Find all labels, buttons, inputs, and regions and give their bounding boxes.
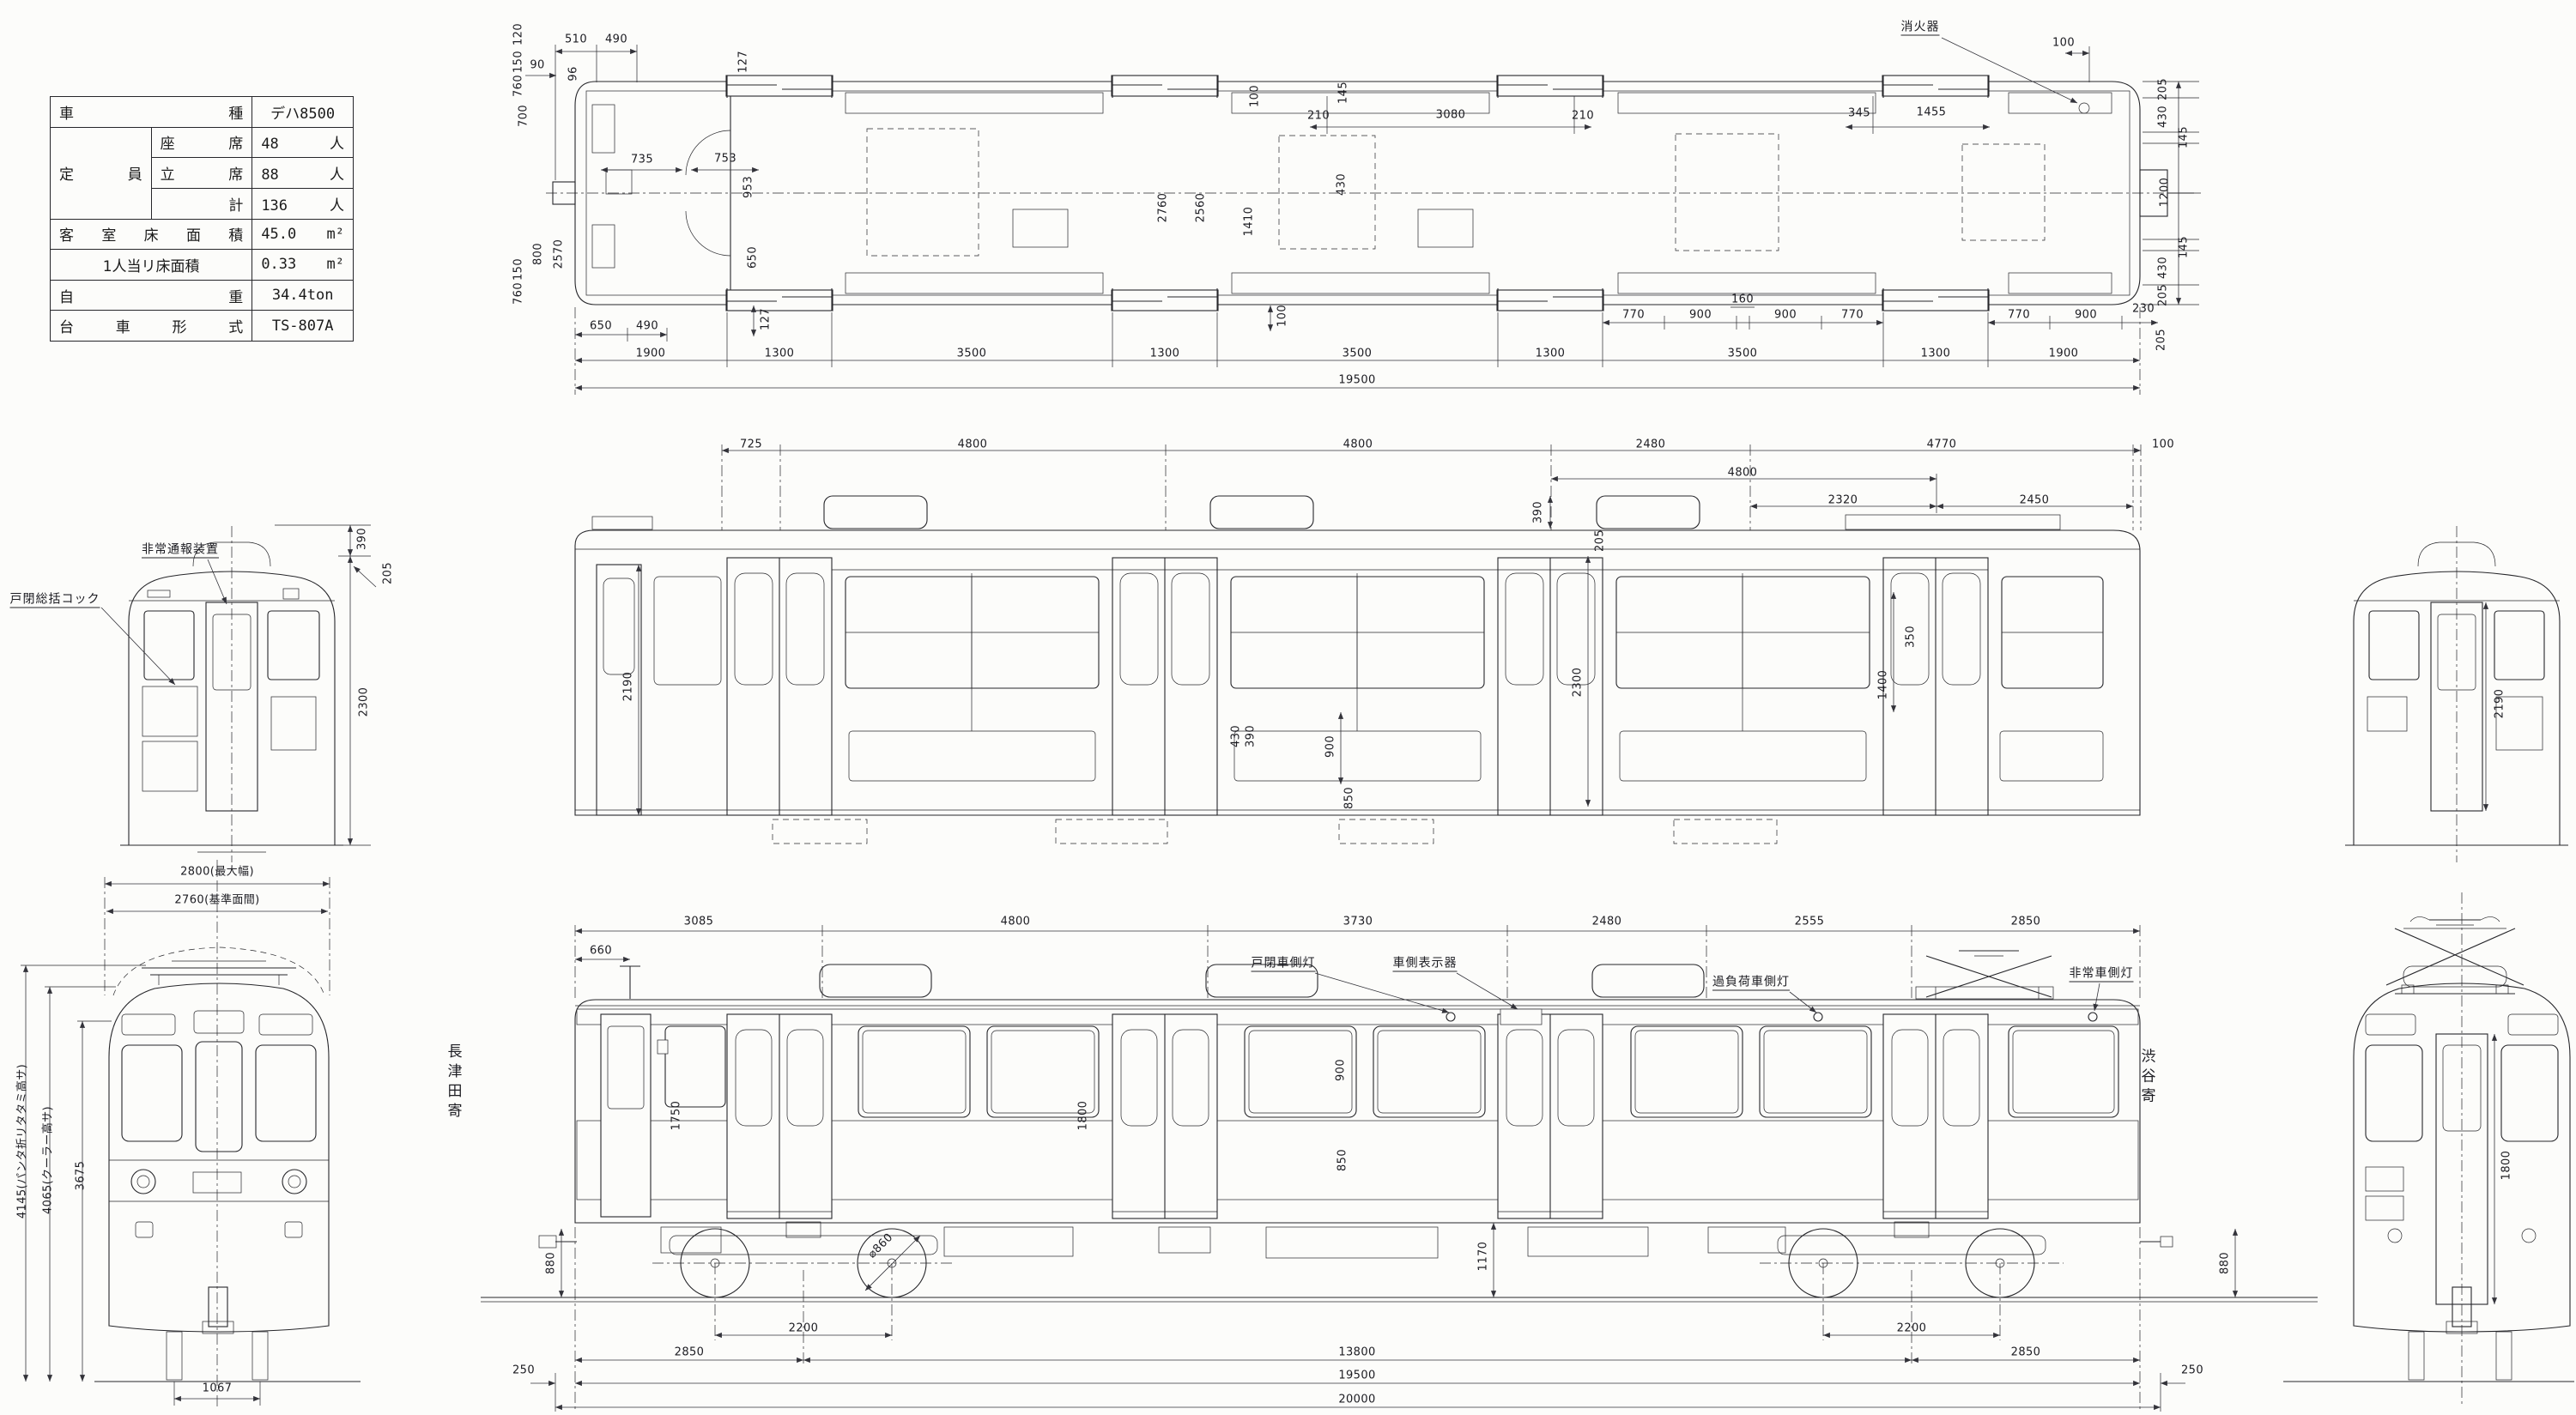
plan-dim-800: 800 <box>533 243 544 265</box>
overload-lamp-label: 過負荷車側灯 <box>1712 977 1790 991</box>
spec-row-floor-area: 客室床面積 45.0 m² <box>51 219 354 250</box>
plan-dim-145b: 145 <box>2179 236 2190 258</box>
plan-dim-490-top: 490 <box>605 34 627 45</box>
car-side-indicator-box <box>1500 1009 1542 1025</box>
plan-dim-770b: 770 <box>1841 310 1864 321</box>
plan-dim-430b: 430 <box>2158 257 2169 279</box>
spec-label-weight: 自 重 <box>51 280 252 311</box>
plan-dim-205b: 205 <box>2158 284 2169 306</box>
spec-value-weight: 34.4ton <box>252 280 354 311</box>
side1-windows-seats <box>832 570 2103 781</box>
side2-dim-1800: 1800 <box>1078 1101 1089 1131</box>
spec-value-standing: 88 人 <box>252 158 354 189</box>
plan-dim-150b: 150 <box>513 258 524 281</box>
left-end-view-linework <box>101 525 376 862</box>
plan-dim-900b: 900 <box>1774 310 1797 321</box>
spec-value-floor-area: 45.0 m² <box>252 219 354 250</box>
plan-dim-953: 953 <box>743 176 755 198</box>
plan-dim-127-bottom: 127 <box>761 308 772 330</box>
plan-dim-150a: 150 <box>513 51 524 73</box>
side1-dim-2450: 2450 <box>2020 495 2050 506</box>
side1-dim-4800c: 4800 <box>1728 468 1758 479</box>
side1-dim-205: 205 <box>1595 529 1606 552</box>
side2-dim-2850R: 2850 <box>2011 1347 2041 1358</box>
side2-dim-250L: 250 <box>512 1365 535 1376</box>
frontL-dim-2800: 2800(最大幅) <box>180 867 254 878</box>
plan-dim-1410: 1410 <box>1244 207 1255 237</box>
side1-dim-430: 430 <box>1231 725 1242 747</box>
side1-dim-2300: 2300 <box>1573 668 1584 698</box>
spec-row-seated: 定 員 座 席 48 人 <box>51 127 354 158</box>
plan-dim-770a: 770 <box>1622 310 1645 321</box>
emergency-lamp-label: 非常車側灯 <box>2070 968 2134 983</box>
plan-dim-430a: 430 <box>2158 106 2169 128</box>
plan-view-linework <box>525 38 2201 395</box>
side1-dim-4800b: 4800 <box>1343 439 1373 451</box>
side2-dim-2850L: 2850 <box>675 1347 705 1358</box>
plan-dim-900a: 900 <box>1689 310 1712 321</box>
side1-dim-350: 350 <box>1906 626 1917 648</box>
side2-dim-660: 660 <box>590 946 612 957</box>
plan-dim-100-right: 100 <box>2052 38 2075 49</box>
fire-extinguisher-mark <box>2079 103 2089 113</box>
plan-dim-760b: 760 <box>513 282 524 305</box>
plan-dim-127: 127 <box>738 51 749 73</box>
side2-dim-19500: 19500 <box>1338 1370 1375 1382</box>
side2-dim-20000: 20000 <box>1338 1394 1375 1406</box>
door-cock-label: 戸閉総括コック <box>10 594 100 608</box>
side2-dim-13800: 13800 <box>1338 1347 1375 1358</box>
shibuya-end-label: 渋谷寄 <box>2139 1049 2154 1108</box>
pantograph-side <box>1916 951 2053 999</box>
plan-dim-2760: 2760 <box>1158 193 1169 223</box>
plan-dim-735: 735 <box>631 154 653 166</box>
plan-dim-205a: 205 <box>2158 78 2169 100</box>
plan-dim-1300b: 1300 <box>1150 348 1180 360</box>
side2-dim-250R: 250 <box>2181 1365 2203 1376</box>
spec-label-total: 計 <box>151 188 252 219</box>
plan-dim-145-mid: 145 <box>1338 82 1349 104</box>
plan-dim-650-bottom: 650 <box>590 321 612 332</box>
plan-dim-205c: 205 <box>2156 329 2167 351</box>
frontL-outline <box>109 983 329 1332</box>
frontR-dim-1800: 1800 <box>2501 1151 2512 1181</box>
plan-dim-760a: 760 <box>513 75 524 97</box>
frontL-dim-4145: 4145(パンタ折リタタミ高サ) <box>17 1064 28 1218</box>
side-indicator-label: 車側表示器 <box>1393 958 1458 972</box>
side2-dim-2850t: 2850 <box>2011 916 2041 928</box>
spec-row-area-per-person: 1人当リ床面積 0.33 m² <box>51 250 354 281</box>
plan-dim-1300c: 1300 <box>1536 348 1566 360</box>
spec-label-standing: 立 席 <box>151 158 252 189</box>
right-front-view-linework <box>2283 892 2574 1407</box>
door-side-lamp-label: 戸閉車側灯 <box>1252 958 1316 972</box>
spec-row-bogie-type: 台車形式 TS-807A <box>51 311 354 342</box>
plan-dim-96: 96 <box>568 66 579 81</box>
emergency-alarm-label: 非常通報装置 <box>142 544 219 559</box>
plan-dim-3500c: 3500 <box>1728 348 1758 360</box>
door-side-lamp <box>1446 1013 1455 1021</box>
plan-dim-210a: 210 <box>1307 111 1330 122</box>
plan-dim-90: 90 <box>530 60 544 71</box>
frontL-dim-1067: 1067 <box>203 1383 233 1394</box>
side2-dim-880L: 880 <box>546 1252 557 1274</box>
side1-dim-4770: 4770 <box>1927 439 1957 451</box>
spec-label-area-per-person: 1人当リ床面積 <box>51 250 252 281</box>
plan-dim-2570: 2570 <box>554 239 565 269</box>
side2-dim-2200R: 2200 <box>1897 1323 1927 1334</box>
spec-label-floor-area: 客室床面積 <box>51 219 252 250</box>
blueprint-canvas: 車 種 デハ8500 定 員 座 席 48 人 立 席 88 人 計 136 人… <box>0 0 2576 1415</box>
plan-dim-2560: 2560 <box>1196 193 1207 223</box>
side1-dim-850: 850 <box>1344 787 1355 809</box>
endL-dim-205: 205 <box>383 562 394 584</box>
side2-dim-900: 900 <box>1336 1059 1347 1081</box>
side1-doors <box>727 558 1988 815</box>
spec-value-car-type: デハ8500 <box>252 97 354 128</box>
plan-dim-1900a: 1900 <box>636 348 666 360</box>
plan-dim-160: 160 <box>1731 294 1754 305</box>
frontL-dim-4065: 4065(クーラー高サ) <box>43 1106 54 1214</box>
spec-label-seated: 座 席 <box>151 127 252 158</box>
side1-dim-100: 100 <box>2152 439 2174 451</box>
side2-dim-1750: 1750 <box>671 1101 682 1131</box>
spec-label-capacity: 定 員 <box>51 127 152 219</box>
spec-row-weight: 自 重 34.4ton <box>51 280 354 311</box>
side1-dim-390a: 390 <box>1533 501 1544 523</box>
side2-dim-1170: 1170 <box>1478 1242 1489 1272</box>
plan-dim-1300a: 1300 <box>765 348 795 360</box>
spec-value-seated: 48 人 <box>252 127 354 158</box>
spec-label-car-type: 車 種 <box>51 97 252 128</box>
plan-dim-1200: 1200 <box>2160 178 2171 208</box>
plan-dim-210b: 210 <box>1572 111 1594 122</box>
side1-dim-1400: 1400 <box>1878 670 1889 700</box>
endL-dim-2300: 2300 <box>359 687 370 717</box>
nagatsuta-end-label: 長津田寄 <box>445 1043 460 1122</box>
side1-dim-900: 900 <box>1325 735 1336 758</box>
plan-dim-430-mid: 430 <box>1336 173 1348 196</box>
plan-dim-770c: 770 <box>2008 310 2030 321</box>
right-end-view-linework <box>2345 526 2568 862</box>
overload-side-lamp <box>1814 1013 1822 1021</box>
plan-dim-1455: 1455 <box>1917 107 1947 118</box>
plan-dim-900c: 900 <box>2075 310 2097 321</box>
fire-extinguisher-label: 消火器 <box>1901 21 1940 36</box>
plan-dim-19500: 19500 <box>1338 375 1375 386</box>
plan-dim-700: 700 <box>518 105 530 127</box>
plan-dim-3500b: 3500 <box>1343 348 1373 360</box>
plan-dim-145a: 145 <box>2179 126 2190 148</box>
side2-dim-3085: 3085 <box>684 916 714 928</box>
plan-dim-3500a: 3500 <box>957 348 987 360</box>
side2-dim-850: 850 <box>1337 1149 1349 1171</box>
side2-dim-2555: 2555 <box>1795 916 1825 928</box>
frontL-dim-3675: 3675 <box>76 1161 87 1191</box>
plan-dim-345: 345 <box>1848 108 1870 119</box>
side1-dim-2480: 2480 <box>1636 439 1666 451</box>
endR-dim-2190: 2190 <box>2494 689 2506 719</box>
plan-dim-230: 230 <box>2132 304 2155 315</box>
plan-dim-753: 753 <box>714 154 736 165</box>
spec-table: 車 種 デハ8500 定 員 座 席 48 人 立 席 88 人 計 136 人… <box>50 96 354 342</box>
plan-dim-650-cab: 650 <box>748 246 759 269</box>
emergency-side-lamp <box>2088 1013 2097 1021</box>
plan-dim-3080: 3080 <box>1436 110 1466 121</box>
side1-dim-390b: 390 <box>1246 725 1257 747</box>
plan-dimension-lines <box>525 45 2199 395</box>
plan-dim-510: 510 <box>565 34 587 45</box>
plan-dim-100-bottom: 100 <box>1277 305 1288 327</box>
side2-dim-4800: 4800 <box>1001 916 1031 928</box>
plan-dim-490-bottom: 490 <box>636 321 658 332</box>
side1-dim-725: 725 <box>740 439 762 451</box>
spec-value-area-per-person: 0.33 m² <box>252 250 354 281</box>
side2-dim-2480: 2480 <box>1592 916 1622 928</box>
plan-dim-1300d: 1300 <box>1921 348 1951 360</box>
side1-dim-4800a: 4800 <box>958 439 988 451</box>
plan-dim-100-mid: 100 <box>1250 85 1261 107</box>
side1-dim-2190: 2190 <box>623 672 634 702</box>
side1-dim-2320: 2320 <box>1828 495 1858 506</box>
left-front-view-linework <box>21 860 361 1407</box>
spec-value-total: 136 人 <box>252 188 354 219</box>
spec-value-bogie-type: TS-807A <box>252 311 354 342</box>
endL-dim-390: 390 <box>357 528 368 550</box>
spec-row-car-type: 車 種 デハ8500 <box>51 97 354 128</box>
lower-side-view-linework <box>481 925 2318 1412</box>
frontL-dim-2760: 2760(基準面間) <box>174 895 259 906</box>
drawing-linework <box>0 0 2576 1415</box>
side2-dim-2200L: 2200 <box>789 1323 819 1334</box>
plan-dim-1900b: 1900 <box>2049 348 2079 360</box>
spec-label-bogie-type: 台車形式 <box>51 311 252 342</box>
side2-dim-880R: 880 <box>2220 1252 2231 1274</box>
side2-dim-3730: 3730 <box>1343 916 1373 928</box>
plan-dim-120: 120 <box>513 23 524 45</box>
